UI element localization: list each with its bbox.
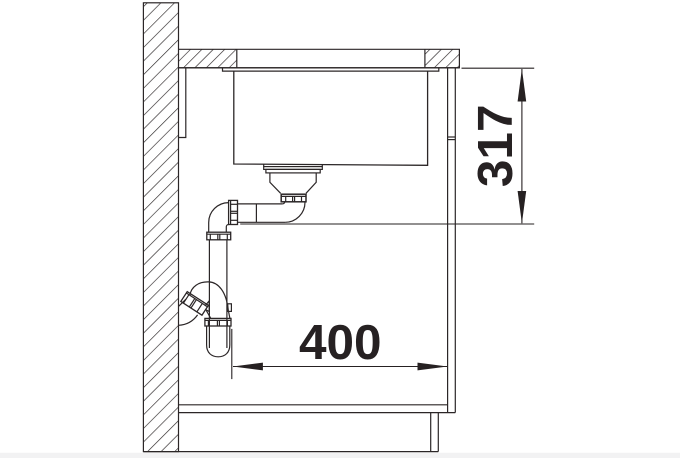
svg-text:317: 317 bbox=[468, 105, 523, 188]
svg-text:400: 400 bbox=[299, 315, 382, 370]
